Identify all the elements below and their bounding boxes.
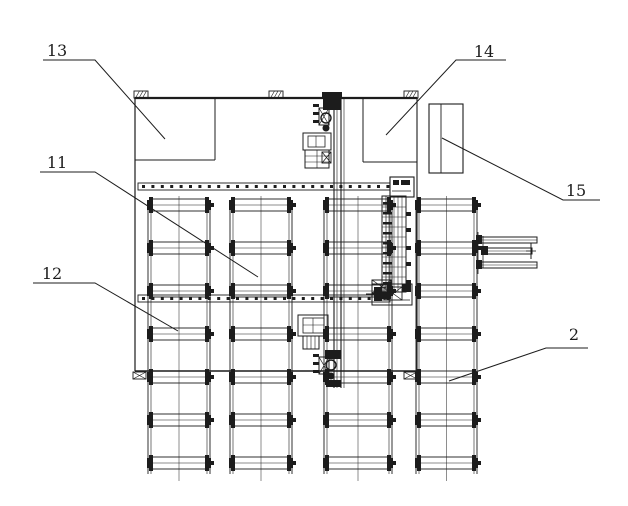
machine-layout-drawing: 13 11 12 14 15 2 [0,0,628,506]
part-label-14: 14 [474,42,494,61]
drawing-canvas: 13 11 12 14 15 2 [0,0,628,506]
leader-line-13 [43,60,165,139]
top-drive-unit [303,133,331,168]
conveyor-column-4 [415,196,481,481]
part-label-15: 15 [566,181,586,200]
leader-line-2 [449,348,588,381]
leader-line-11 [40,172,258,277]
fork-assembly [476,232,537,274]
machine-structure [133,91,537,481]
inner-chamber-left [135,99,215,160]
leader-line-12 [33,283,178,331]
side-cabinet [429,104,463,173]
part-label-12: 12 [42,264,62,283]
conveyor-column-2 [229,196,296,481]
conveyor-column-1 [147,196,214,481]
part-label-13: 13 [47,41,67,60]
transfer-conveyor-top [138,177,414,197]
part-label-11: 11 [47,153,67,172]
part-label-2: 2 [569,325,579,344]
main-frame [133,91,418,379]
